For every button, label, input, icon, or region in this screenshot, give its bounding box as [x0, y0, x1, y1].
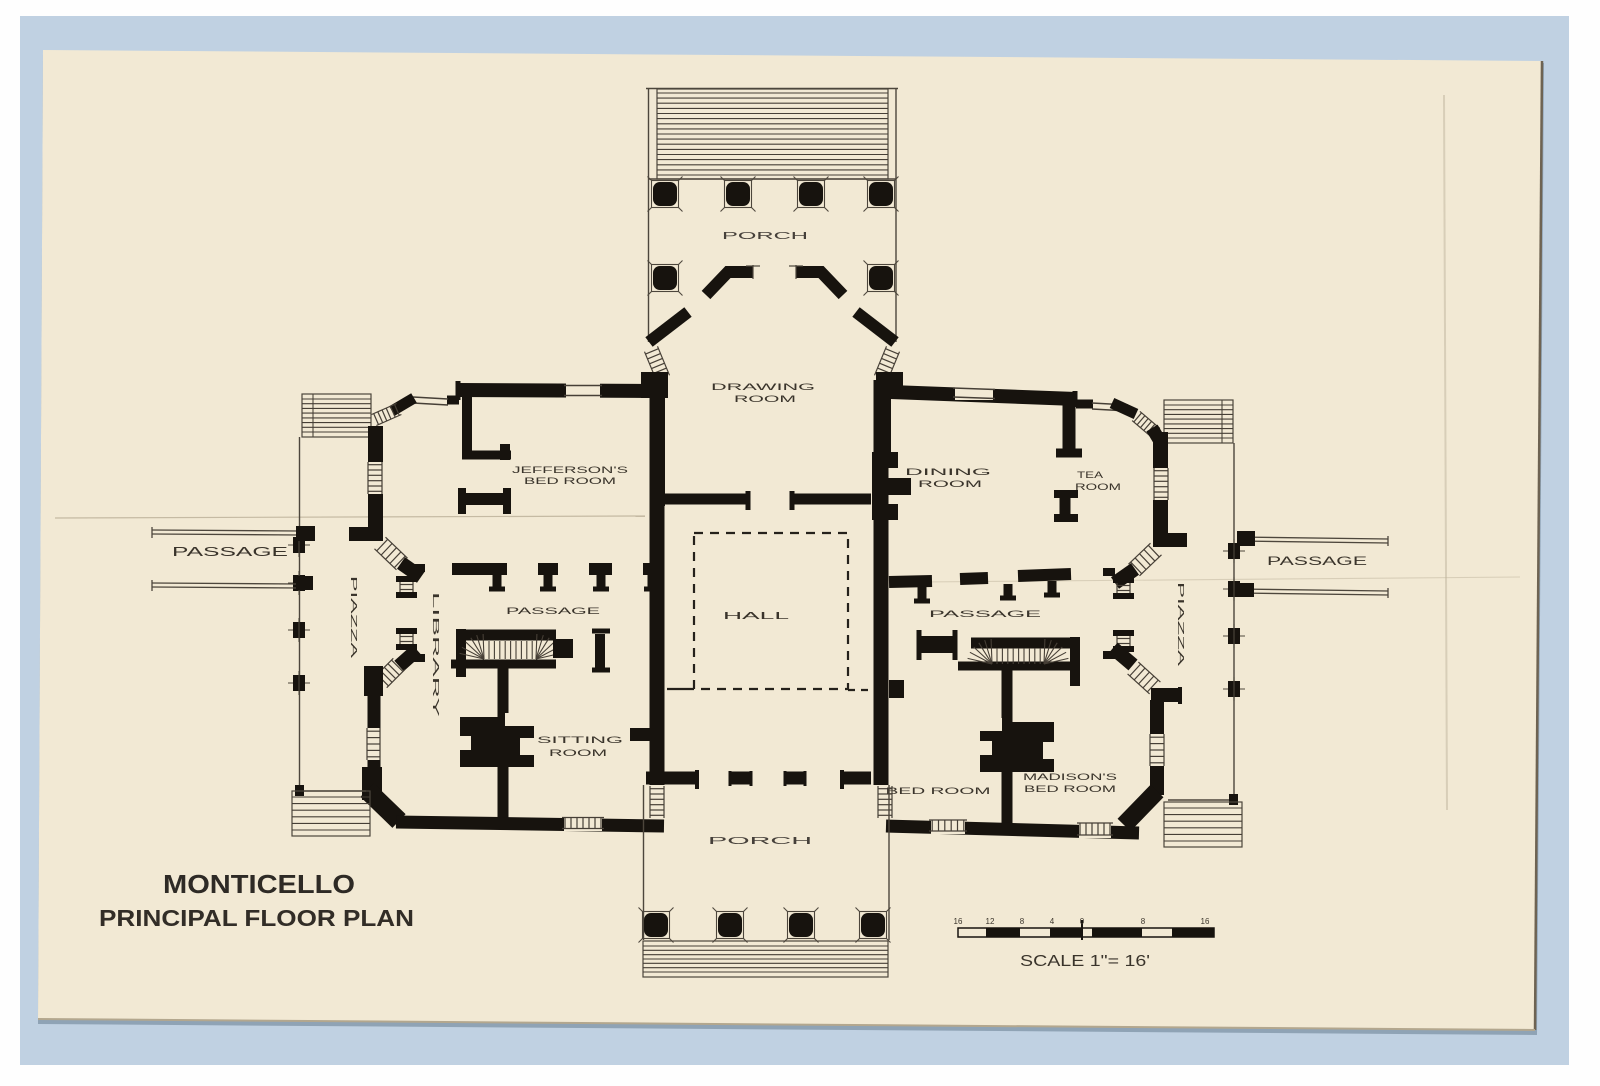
svg-text:TEA: TEA — [1077, 470, 1103, 480]
svg-text:MONTICELLO: MONTICELLO — [163, 869, 355, 899]
svg-text:16: 16 — [954, 917, 963, 926]
svg-text:4: 4 — [1050, 917, 1055, 926]
svg-text:PORCH: PORCH — [722, 230, 808, 242]
svg-text:PRINCIPAL FLOOR PLAN: PRINCIPAL FLOOR PLAN — [99, 905, 414, 931]
svg-text:HALL: HALL — [723, 610, 789, 622]
svg-text:ROOM: ROOM — [734, 394, 796, 405]
svg-text:SITTING: SITTING — [537, 735, 623, 746]
svg-text:PASSAGE: PASSAGE — [506, 606, 600, 617]
svg-text:12: 12 — [986, 917, 995, 926]
svg-text:ROOM: ROOM — [1075, 482, 1121, 492]
svg-text:DRAWING: DRAWING — [711, 382, 815, 393]
svg-text:PIAZZA: PIAZZA — [349, 576, 359, 659]
svg-text:BED ROOM: BED ROOM — [886, 786, 991, 796]
svg-text:8: 8 — [1020, 917, 1025, 926]
svg-text:PIAZZA: PIAZZA — [1176, 582, 1186, 667]
svg-text:0: 0 — [1080, 917, 1085, 926]
svg-text:JEFFERSON'S: JEFFERSON'S — [512, 465, 628, 475]
svg-text:ROOM: ROOM — [918, 479, 982, 490]
svg-text:DINING: DINING — [905, 467, 991, 478]
svg-text:8: 8 — [1141, 917, 1146, 926]
svg-text:ROOM: ROOM — [549, 748, 607, 759]
svg-text:PASSAGE: PASSAGE — [172, 544, 289, 559]
svg-text:PORCH: PORCH — [708, 835, 812, 847]
svg-text:SCALE 1"= 16': SCALE 1"= 16' — [1020, 953, 1150, 970]
svg-text:PASSAGE: PASSAGE — [929, 609, 1041, 620]
svg-text:BED ROOM: BED ROOM — [1024, 784, 1116, 794]
svg-text:PASSAGE: PASSAGE — [1267, 554, 1367, 568]
svg-text:LIBRARY: LIBRARY — [431, 592, 441, 718]
svg-text:16: 16 — [1201, 917, 1210, 926]
svg-text:BED ROOM: BED ROOM — [524, 476, 616, 486]
svg-text:MADISON'S: MADISON'S — [1023, 772, 1117, 782]
